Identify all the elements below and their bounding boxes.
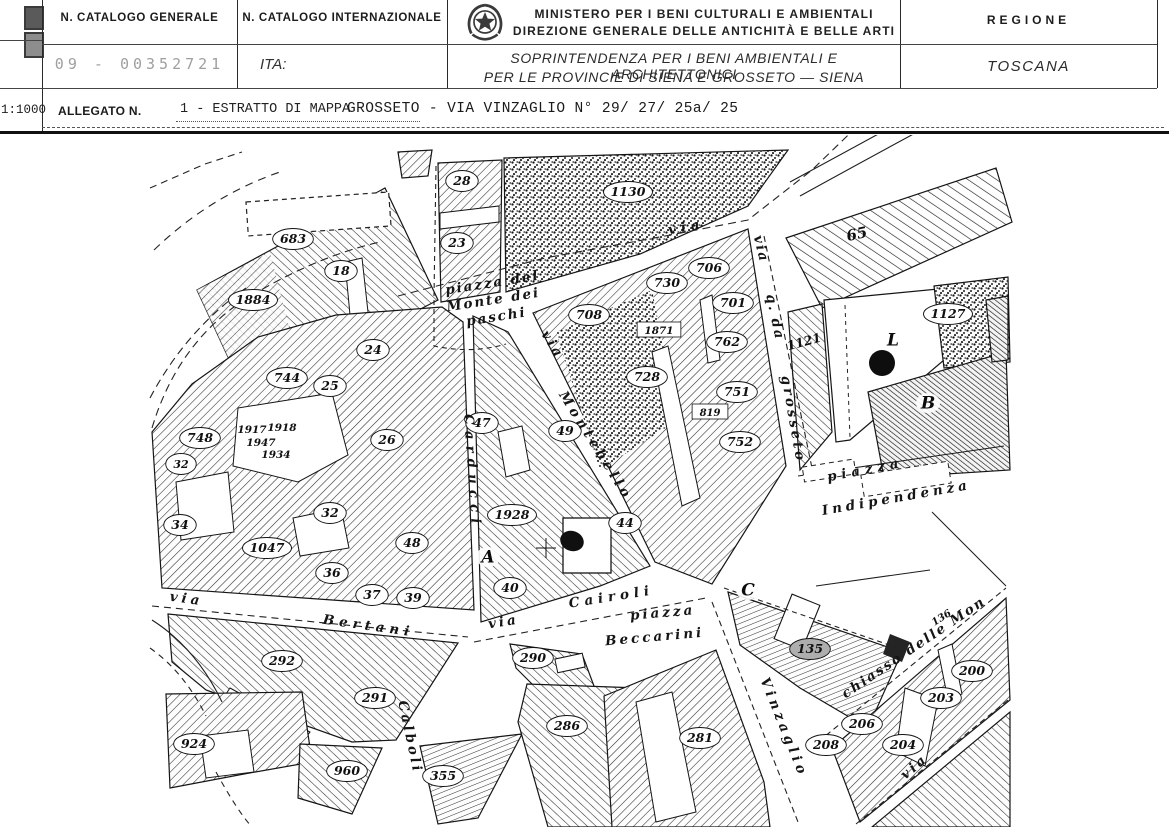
- map-shape: 1047: [250, 540, 285, 555]
- parcel-label: 36: [316, 563, 349, 584]
- map-shape: 706: [696, 260, 722, 275]
- map-shape: 34: [171, 517, 188, 532]
- allegato-value: 1 - ESTRATTO DI MAPPA: [180, 102, 350, 117]
- map-shape: [216, 772, 252, 827]
- street-label: q. da: [762, 293, 787, 342]
- map-shape: 292: [268, 653, 295, 668]
- parcel-label: 200: [952, 661, 993, 682]
- map-shape: 1918: [267, 422, 297, 434]
- map-shape: 32: [173, 458, 189, 471]
- map-shape: 355: [430, 768, 456, 783]
- parcel-label: 286: [547, 716, 588, 737]
- map-shape: 203: [927, 690, 954, 705]
- map-shape: 37: [363, 587, 381, 602]
- map-shape: 1917: [237, 424, 267, 436]
- monument-dot: [869, 350, 895, 376]
- map-shape: 206: [848, 716, 875, 731]
- map-shape: [150, 152, 242, 188]
- parcel-label: 40: [494, 578, 527, 599]
- underline: [176, 121, 420, 122]
- map-shape: 39: [404, 590, 422, 605]
- street-label: Calboli: [394, 699, 425, 775]
- map-shape: 960: [334, 763, 360, 778]
- form-header: N. CATALOGO GENERALE 09 - 00352721 N. CA…: [0, 0, 1169, 135]
- margin-mark: [24, 32, 44, 58]
- map-shape: 748: [187, 430, 213, 445]
- street-label: Vinzaglio: [756, 675, 811, 780]
- parcel-label: 744: [267, 368, 308, 389]
- parcel-label: 37: [356, 585, 389, 606]
- map-shape: 40: [501, 580, 519, 595]
- parcel-label: 730: [647, 273, 688, 294]
- map-shape: 1127: [931, 306, 966, 321]
- map-shape: 708: [576, 307, 602, 322]
- parcel-label: 751: [717, 382, 758, 403]
- parcel-label: 24: [357, 340, 390, 361]
- map-shape: 1871: [644, 325, 673, 337]
- rule: [0, 40, 42, 41]
- parcel-label: 292: [262, 651, 303, 672]
- map-shape: 819: [700, 408, 721, 419]
- parcel-label: 1127: [924, 304, 973, 325]
- map-shape: 25: [320, 378, 338, 393]
- ministry-line1: MINISTERO PER I BENI CULTURALI E AMBIENT…: [512, 7, 896, 21]
- rule: [0, 88, 1157, 89]
- parcel-label: 762: [707, 332, 748, 353]
- ministry-line2: DIREZIONE GENERALE DELLE ANTICHITÀ E BEL…: [512, 24, 896, 38]
- parcel-label: 960: [327, 761, 368, 782]
- catalogo-internazionale-label: N. CATALOGO INTERNAZIONALE: [237, 12, 447, 24]
- allegato-label: ALLEGATO N.: [58, 104, 142, 118]
- parcel-label: 281: [680, 728, 721, 749]
- parcel-label: 924: [174, 734, 215, 755]
- parcel-label: 1871: [637, 322, 681, 337]
- map-shape: 44: [616, 515, 633, 530]
- divider: [1157, 0, 1158, 88]
- parcel-label: 44: [609, 513, 642, 534]
- parcel-label: 701: [713, 293, 754, 314]
- map-shape: 281: [686, 730, 713, 745]
- map-shape: 135: [797, 641, 823, 656]
- map-scale: 1:1000: [1, 103, 41, 117]
- parcel-label: 23: [441, 233, 474, 254]
- parcel-label: 728: [627, 367, 668, 388]
- rule: [42, 127, 1164, 128]
- parcel-label: 32: [166, 454, 197, 475]
- map-shape: 744: [274, 370, 300, 385]
- map-shape: L: [886, 331, 899, 351]
- map-shape: 752: [727, 434, 753, 449]
- parcel-label: 708: [569, 305, 610, 326]
- parcel-label: 34: [164, 515, 197, 536]
- map-shape: 24: [363, 342, 381, 357]
- map-shape: 32: [321, 505, 339, 520]
- map-shape: 18: [332, 263, 350, 278]
- parcel-label: 1947: [246, 437, 276, 449]
- parcel-label: 355: [423, 766, 464, 787]
- map-shape: 204: [889, 737, 916, 752]
- street-label: via: [487, 612, 520, 633]
- parcel-label: 208: [806, 735, 847, 756]
- rule: [42, 44, 1157, 45]
- map-shape: 728: [634, 369, 660, 384]
- block-top-fragment: [398, 150, 432, 178]
- parcel-label: 203: [921, 688, 962, 709]
- parcel-label: 752: [720, 432, 761, 453]
- parcel-label: 39: [397, 588, 430, 609]
- map-shape: 23: [447, 235, 466, 250]
- map-shape: 701: [720, 295, 746, 310]
- soprintendenza-line2: PER LE PROVINCIE DI SIENA E GROSSETO — S…: [450, 69, 898, 85]
- parcel-label: 1928: [488, 505, 537, 526]
- map-shape: 751: [724, 384, 750, 399]
- map-shape: 1934: [261, 449, 290, 461]
- map-shape: 1884: [236, 292, 271, 307]
- parcel-label: 32: [314, 503, 347, 524]
- map-shape: [434, 166, 436, 296]
- map-shape: [932, 512, 1006, 586]
- catalogo-generale-label: N. CATALOGO GENERALE: [42, 12, 237, 24]
- catalogo-internazionale-value: ITA:: [260, 56, 286, 73]
- map-shape: C: [741, 581, 755, 601]
- map-shape: 924: [181, 736, 207, 751]
- map-shape: 28: [452, 173, 471, 188]
- map-shape: 26: [377, 432, 396, 447]
- map-shape: B: [920, 394, 935, 414]
- map-shape: 683: [280, 231, 306, 246]
- map-shape: 36: [323, 565, 341, 580]
- parcel-label: 25: [314, 376, 347, 397]
- map-shape: 730: [654, 275, 680, 290]
- street-label: via: [169, 589, 205, 610]
- map-shape: 762: [714, 334, 740, 349]
- parcel-label: 135: [790, 639, 831, 660]
- map-shape: 1928: [495, 507, 530, 522]
- map-shape: 286: [553, 718, 580, 733]
- map-shape: 200: [958, 663, 985, 678]
- map-shape: [816, 570, 930, 586]
- catalog-sheet: 6831818842823113065247442574819171918194…: [0, 0, 1169, 827]
- parcel-label: 1047: [243, 538, 292, 559]
- parcel-label: 1917: [237, 424, 267, 436]
- parcel-label: 204: [883, 735, 924, 756]
- map-shape: 208: [812, 737, 839, 752]
- parcel-label: 26: [371, 430, 404, 451]
- catalogo-generale-value: 09 - 00352721: [42, 55, 237, 73]
- parcel-label: 1130: [604, 182, 653, 203]
- parcel-label: 683: [273, 229, 314, 250]
- map-shape: 1947: [246, 437, 276, 449]
- map-shape: 49: [556, 423, 574, 438]
- map-shape: 290: [519, 650, 546, 665]
- map-shape: 1130: [611, 184, 646, 199]
- map-shape: 291: [361, 690, 388, 705]
- street-label: Beccarini: [603, 625, 704, 650]
- parcel-label: 48: [396, 533, 429, 554]
- parcel-label: 18: [325, 261, 358, 282]
- map-shape: 48: [403, 535, 421, 550]
- parcel-label: 28: [446, 171, 479, 192]
- parcel-label: 819: [692, 404, 728, 419]
- parcel-label: 291: [355, 688, 396, 709]
- italy-emblem-icon: [464, 2, 506, 44]
- regione-value: TOSCANA: [900, 58, 1157, 75]
- parcel-label: 748: [180, 428, 221, 449]
- parcel-label: 706: [689, 258, 730, 279]
- parcel-label: 1934: [261, 449, 290, 461]
- map-shape: A: [479, 548, 494, 568]
- location-title: GROSSETO - VIA VINZAGLIO N° 29/ 27/ 25a/…: [347, 101, 738, 117]
- parcel-label: 290: [513, 648, 554, 669]
- street-label: piazza: [629, 602, 696, 624]
- parcel-label: 206: [842, 714, 883, 735]
- parcel-label: 1884: [229, 290, 278, 311]
- rule: [0, 131, 1169, 134]
- parcel-label: 1918: [267, 422, 297, 434]
- regione-label: REGIONE: [900, 13, 1157, 27]
- margin-mark: [24, 6, 44, 30]
